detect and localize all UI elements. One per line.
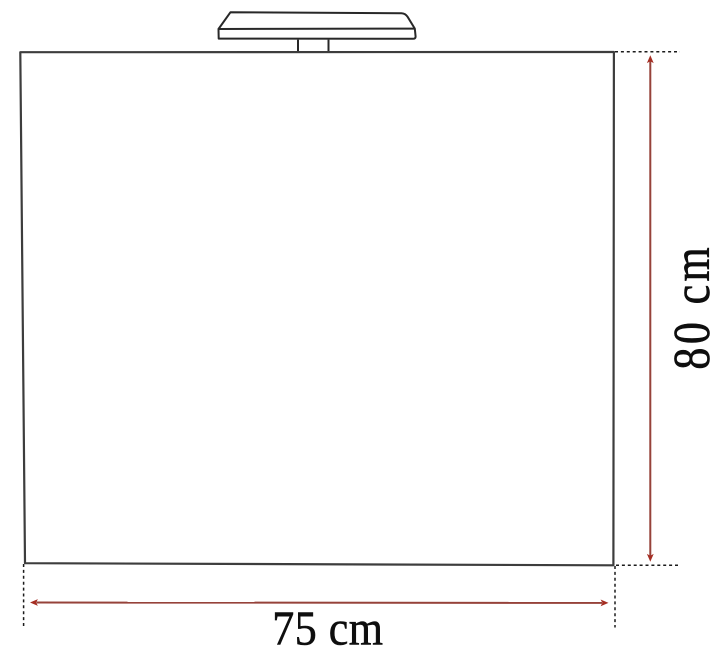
svg-text:75 cm: 75 cm: [272, 603, 383, 656]
svg-text:80 cm: 80 cm: [663, 244, 720, 370]
